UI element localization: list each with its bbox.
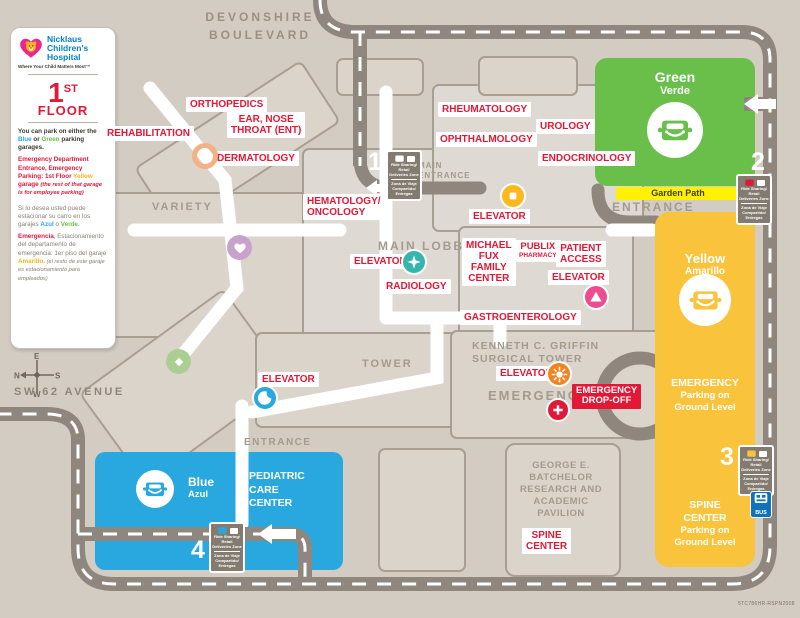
sign-text-es: Zona de Viaje Compartido/ Entregas — [389, 182, 419, 196]
area-entrance-south: ENTRANCE — [244, 437, 312, 449]
label-line: PEDIATRIC — [249, 470, 305, 484]
label-line: HEMATOLOGY/ — [307, 196, 381, 207]
note-line: Parking on — [655, 390, 755, 402]
rideshare-sign-4: Ride Sharing/ Retail Deliveries Zone Zon… — [209, 522, 245, 573]
label-line: KENNETH C. GRIFFIN — [472, 340, 599, 353]
brand-name: Nicklaus Children's Hospital — [47, 35, 88, 62]
sign-text-en: Ride Sharing/ Retail Deliveries Zone — [389, 163, 419, 177]
svg-text:E: E — [34, 352, 40, 361]
elevator-icon-moon — [252, 385, 278, 411]
sign-text-en: Ride Sharing/ Retail Deliveries Zone — [739, 187, 769, 201]
area-main-lobby: MAIN LOBBY — [378, 239, 474, 253]
label-line: CARE — [249, 484, 305, 498]
note-line: Ground Level — [655, 537, 755, 549]
sign-text-es: Zona de Viaje Compartido/ Entregas — [739, 206, 769, 220]
elevator-icon-sun — [546, 361, 572, 387]
decor-heart-icon — [227, 235, 252, 260]
decor-diamond-icon — [166, 349, 191, 374]
blue-garage-name: Blue — [188, 475, 214, 489]
yellow-garage-spine-note: SPINE CENTER Parking on Ground Level — [655, 499, 755, 549]
pediatric-care-center-label: PEDIATRIC CARE CENTER — [249, 470, 305, 511]
label-line: DROP-OFF — [576, 396, 637, 406]
emergency-cross-icon — [546, 398, 570, 422]
floor-indicator: 1ST FLOOR — [18, 80, 108, 117]
sign-badge — [230, 528, 238, 534]
heart-icon — [231, 239, 249, 257]
label-hematology: HEMATOLOGY/ ONCOLOGY — [303, 194, 385, 220]
sign-text-es: Zona de Viaje Compartido/ Entregas — [212, 554, 242, 568]
brand-block: Nicklaus Children's Hospital — [18, 35, 108, 62]
car-icon — [656, 116, 694, 144]
yellow-garage-car-circle — [679, 274, 731, 326]
note-line: EMERGENCY — [655, 377, 755, 390]
label-radiology: RADIOLOGY — [382, 279, 451, 294]
label-publix-pharmacy: PUBLIX PHARMACY — [515, 240, 561, 262]
nicklaus-heart-bear-logo-icon — [18, 36, 44, 60]
label-urology: UROLOGY — [536, 119, 595, 134]
sun-icon — [550, 365, 569, 384]
area-variety: VARIETY — [152, 201, 213, 214]
label-line: SPINE — [526, 530, 567, 541]
emergency-note-es: Emergencia, Estacionamiento del departam… — [18, 233, 108, 283]
yellow-garage-name: Yellow — [655, 252, 755, 266]
label-line: PATIENT — [560, 243, 602, 254]
label-elevator-north: ELEVATOR — [469, 209, 530, 224]
divider — [28, 74, 98, 75]
label-line: ACCESS — [560, 254, 602, 265]
label-spine-center: SPINE CENTER — [522, 528, 571, 554]
label-michael-fux: MICHAEL FUX FAMILY CENTER — [462, 238, 516, 286]
green-garage-name-es: Verde — [595, 85, 755, 97]
area-main-entrance: MAIN ENTRANCE — [418, 161, 470, 180]
rideshare-sign-1: Ride Sharing/ Retail Deliveries Zone Zon… — [386, 150, 422, 201]
street-line: BOULEVARD — [190, 26, 330, 44]
note-line: Parking on — [655, 525, 755, 537]
emergency-note-en: Emergency Department Entrance, Emergency… — [18, 156, 108, 197]
label-line: PAVILION — [506, 508, 616, 520]
bus-stop-sign: BUS — [750, 491, 772, 518]
area-entrance-east: ENTRANCE — [612, 200, 695, 214]
marker-3: 3 — [720, 443, 734, 472]
map-document-code: 5TC786HR-RSPN2008 — [738, 601, 795, 607]
label-line: SURGICAL TOWER — [472, 353, 599, 366]
sign-text-en: Ride Sharing/ Retail Deliveries Zone — [741, 458, 771, 472]
garden-path-strip: Garden Path — [616, 187, 740, 200]
area-batchelor: GEORGE E. BATCHELOR RESEARCH AND ACADEMI… — [506, 460, 616, 519]
marker-2: 2 — [751, 148, 765, 177]
elevator-icon-star — [401, 249, 427, 275]
label-line: THROAT (ENT) — [231, 125, 301, 136]
sign-text-en: Ride Sharing/ Retail Deliveries Zone — [212, 535, 242, 549]
bus-icon — [752, 492, 770, 506]
label-line: RESEARCH AND — [506, 484, 616, 496]
svg-text:S: S — [55, 372, 60, 381]
label-ophthalmology: OPHTHALMOLOGY — [436, 132, 537, 147]
blue-garage-name-es: Azul — [188, 489, 214, 500]
building-top-small-2 — [478, 56, 578, 96]
rideshare-sign-3: Ride Sharing/ Retail Deliveries Zone Zon… — [738, 445, 774, 496]
street-sw62: SW 62 AVENUE — [14, 386, 125, 398]
label-line: MAIN — [418, 161, 470, 171]
yellow-parking-garage: Yellow Amarillo EMERGENCY Parking on Gro… — [655, 212, 755, 567]
label-line: ENTRANCE — [418, 171, 470, 181]
floor-suffix: ST — [64, 83, 78, 95]
elevator-icon-triangle — [583, 284, 609, 310]
parking-note-en: You can park on either the Blue or Green… — [18, 128, 108, 153]
label-line: ONCOLOGY — [307, 207, 381, 218]
label-line: MICHAEL — [466, 240, 512, 251]
label-ent: EAR, NOSE THROAT (ENT) — [227, 112, 305, 138]
divider — [28, 122, 98, 123]
star-icon — [405, 253, 423, 271]
marker-4: 4 — [191, 536, 205, 565]
label-line: FUX — [466, 251, 512, 262]
building-top-small-1 — [336, 58, 424, 96]
label-gastroenterology: GASTROENTEROLOGY — [460, 310, 581, 325]
yellow-garage-emergency-note: EMERGENCY Parking on Ground Level — [655, 377, 755, 414]
label-emergency-drop-off: EMERGENCY DROP-OFF — [572, 384, 641, 409]
label-line: EAR, NOSE — [231, 114, 301, 125]
street-devonshire: DEVONSHIRE BOULEVARD — [190, 8, 330, 44]
triangle-icon — [587, 288, 605, 306]
sign-badge — [757, 180, 765, 186]
area-surgical-tower: KENNETH C. GRIFFIN SURGICAL TOWER — [472, 340, 599, 365]
moon-icon — [256, 389, 274, 407]
label-dermatology: DERMATOLOGY — [213, 151, 299, 166]
decor-ring-icon — [192, 143, 218, 169]
label-line: CENTER — [466, 273, 512, 284]
sign-text-es: Zona de Viaje Compartido/ Entregas — [741, 477, 771, 491]
rideshare-sign-2: Ride Sharing/ Retail Deliveries Zone Zon… — [736, 174, 772, 225]
label-line: CENTER — [249, 497, 305, 511]
floor-word: FLOOR — [18, 105, 108, 117]
label-line: BATCHELOR — [506, 472, 616, 484]
label-line: FAMILY — [466, 262, 512, 273]
green-garage-car-circle — [647, 102, 703, 158]
brand-tagline: Where Your Child Matters Most™ — [18, 64, 108, 69]
area-tower: TOWER — [362, 358, 413, 371]
cross-icon — [550, 402, 566, 418]
label-rehabilitation: REHABILITATION — [103, 126, 194, 141]
square-icon — [504, 187, 522, 205]
sign-badge — [759, 451, 767, 457]
street-line: DEVONSHIRE — [190, 8, 330, 26]
label-line: PHARMACY — [519, 252, 557, 259]
elevator-icon-square — [500, 183, 526, 209]
blue-garage-name-block: Blue Azul — [188, 475, 214, 500]
bus-label: BUS — [751, 511, 771, 517]
label-elevator-patient-access: ELEVATOR — [548, 270, 609, 285]
label-orthopedics: ORTHOPEDICS — [186, 97, 267, 112]
note-line: SPINE — [655, 499, 755, 512]
label-line: ACADEMIC — [506, 496, 616, 508]
label-rheumatology: RHEUMATOLOGY — [438, 102, 531, 117]
sign-badge — [407, 156, 415, 162]
blue-garage-car-circle — [136, 470, 174, 508]
building-west-box — [378, 448, 466, 572]
label-endocrinology: ENDOCRINOLOGY — [538, 151, 635, 166]
label-patient-access: PATIENT ACCESS — [556, 241, 606, 267]
car-icon — [142, 479, 168, 499]
car-icon — [688, 287, 723, 313]
label-line: CENTER — [526, 541, 567, 552]
hospital-campus-map: Green Verde Yellow Amarillo EMERGENCY Pa… — [0, 0, 800, 618]
diamond-icon — [170, 353, 188, 371]
note-line: CENTER — [655, 512, 755, 525]
marker-1: 1 — [368, 148, 382, 177]
note-line: Ground Level — [655, 402, 755, 414]
svg-text:N: N — [14, 372, 20, 381]
green-garage-name: Green — [595, 70, 755, 85]
parking-note-es: Si lo desea usted puede estacionar su ca… — [18, 205, 108, 230]
label-line: PUBLIX — [519, 242, 557, 252]
brand-line: Hospital — [47, 53, 88, 62]
label-line: GEORGE E. — [506, 460, 616, 472]
legend-panel: Nicklaus Children's Hospital Where Your … — [10, 27, 116, 349]
